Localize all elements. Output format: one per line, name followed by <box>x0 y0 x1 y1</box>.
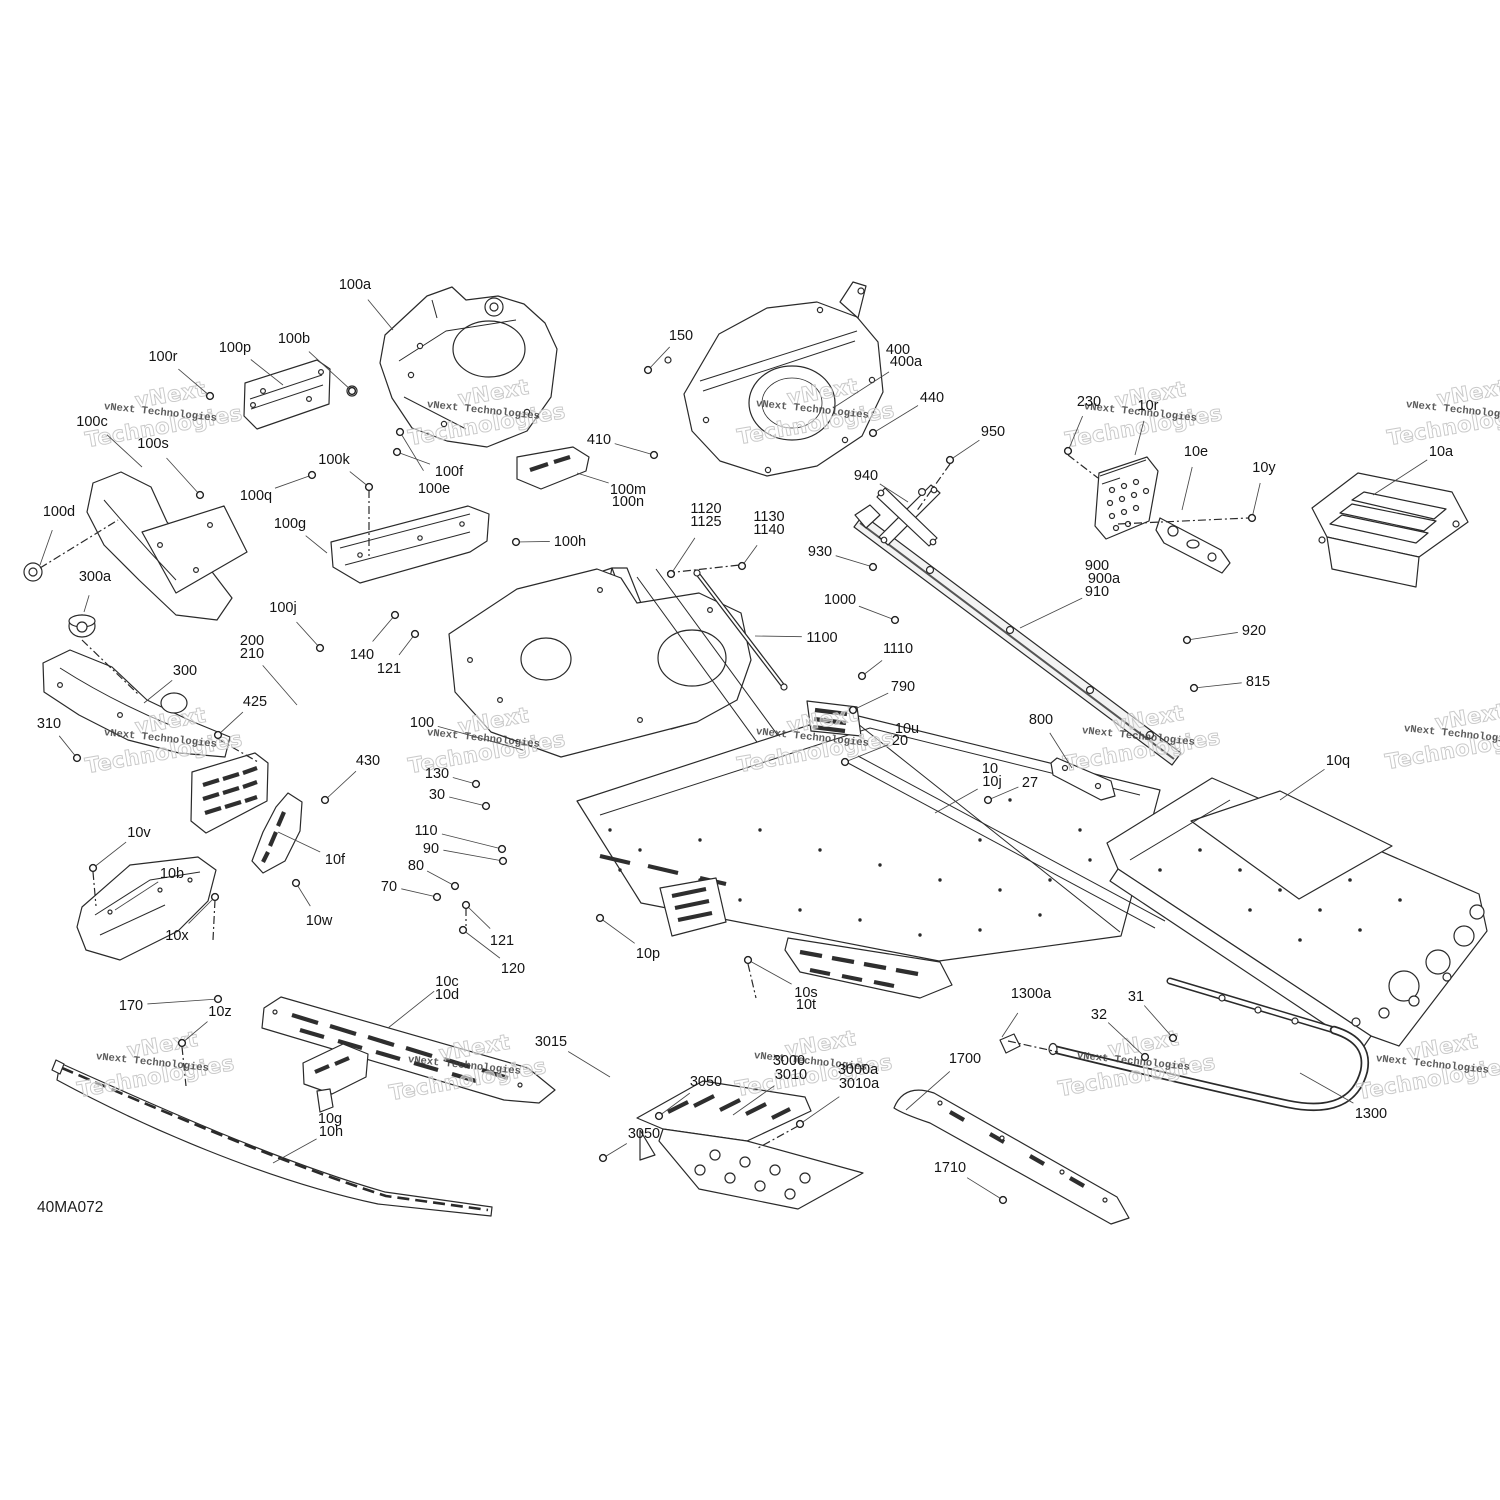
part-label: 121 <box>377 661 401 677</box>
part-label: 121 <box>490 933 514 949</box>
part-label: 10r <box>1138 398 1159 414</box>
fastener-icon <box>366 484 373 491</box>
part-label: 430 <box>356 753 380 769</box>
fastener-icon <box>1000 1197 1007 1204</box>
fastener-icon <box>90 865 97 872</box>
part-label: 120 <box>501 961 525 977</box>
fastener-icon <box>797 1121 804 1128</box>
fastener-icon <box>212 894 219 901</box>
fastener-icon <box>499 846 506 853</box>
part-label: 100j <box>269 600 296 616</box>
part-label: 400a <box>890 354 923 370</box>
drawing-code: 40MA072 <box>37 1199 103 1216</box>
part-label: 815 <box>1246 674 1270 690</box>
part-label: 1000 <box>824 592 856 608</box>
part-label: 300 <box>173 663 197 679</box>
fastener-icon <box>842 759 849 766</box>
fastener-icon <box>463 902 470 909</box>
fastener-icon <box>412 631 419 638</box>
part-label: 1300a <box>1011 986 1052 1002</box>
plug-100d-drawing <box>24 563 42 581</box>
part-label: 930 <box>808 544 832 560</box>
fastener-icon <box>452 883 459 890</box>
part-label: 100k <box>318 452 350 468</box>
fastener-icon <box>309 472 316 479</box>
part-label: 100e <box>418 481 450 497</box>
part-label: 410 <box>587 432 611 448</box>
part-label: 10a <box>1429 444 1454 460</box>
fastener-icon <box>473 781 480 788</box>
part-label: 1100 <box>806 630 837 646</box>
part-label: 10h <box>319 1124 343 1140</box>
fastener-icon <box>215 996 222 1003</box>
part-label: 27 <box>1022 775 1038 791</box>
part-label: 100p <box>219 340 251 356</box>
fastener-icon <box>745 957 752 964</box>
part-label: 10f <box>325 852 346 868</box>
part-label: 950 <box>981 424 1005 440</box>
part-label: 10j <box>982 774 1001 790</box>
fastener-icon <box>392 612 399 619</box>
part-label: 10z <box>208 1004 231 1020</box>
fastener-icon <box>1249 515 1256 522</box>
part-label: 100s <box>137 436 168 452</box>
fastener-icon <box>207 393 214 400</box>
fastener-icon <box>460 927 467 934</box>
part-label: 10v <box>127 825 151 841</box>
part-label: 100 <box>410 715 434 731</box>
part-label: 10x <box>165 928 189 944</box>
part-label: 100a <box>339 277 372 293</box>
part-label: 100g <box>274 516 306 532</box>
fastener-icon <box>322 797 329 804</box>
part-label: 90 <box>423 841 439 857</box>
part-label: 10w <box>306 913 333 929</box>
part-label: 1700 <box>949 1051 981 1067</box>
part-label: 790 <box>891 679 915 695</box>
part-label: 230 <box>1077 394 1101 410</box>
fastener-icon <box>349 388 356 395</box>
part-label: 300a <box>79 569 112 585</box>
fastener-icon <box>859 673 866 680</box>
part-label: 1300 <box>1355 1106 1387 1122</box>
part-label: 100c <box>76 414 107 430</box>
part-label: 100r <box>148 349 177 365</box>
part-label: 100h <box>554 534 586 550</box>
part-label: 800 <box>1029 712 1053 728</box>
part-label: 1125 <box>690 514 721 530</box>
fastener-icon <box>1065 448 1072 455</box>
part-label: 3010 <box>775 1067 807 1083</box>
fastener-icon <box>739 563 746 570</box>
part-label: 3010a <box>839 1076 880 1092</box>
fastener-icon <box>892 617 899 624</box>
part-label: 10q <box>1326 753 1350 769</box>
fastener-icon <box>317 645 324 652</box>
part-label: 1110 <box>883 641 913 657</box>
fastener-icon <box>651 452 658 459</box>
fastener-icon <box>215 732 222 739</box>
part-label: 1140 <box>753 522 784 538</box>
leader-line <box>516 541 550 542</box>
fastener-icon <box>74 755 81 762</box>
part-label: 310 <box>37 716 61 732</box>
part-label: 80 <box>408 858 424 874</box>
part-label: 32 <box>1091 1007 1107 1023</box>
part-label: 31 <box>1128 989 1144 1005</box>
fastener-icon <box>434 894 441 901</box>
fastener-icon <box>1170 1035 1177 1042</box>
fastener-icon <box>293 880 300 887</box>
fastener-icon <box>645 367 652 374</box>
part-label: 170 <box>119 998 143 1014</box>
fastener-icon <box>1142 1054 1149 1061</box>
part-label: 10e <box>1184 444 1208 460</box>
parts-diagram-canvas: vNextTechnologiesvNext TechnologiesvNext… <box>0 0 1500 1500</box>
part-label: 210 <box>240 646 264 662</box>
fastener-icon <box>597 915 604 922</box>
part-label: 3050 <box>690 1074 722 1090</box>
fastener-icon <box>870 564 877 571</box>
part-label: 150 <box>669 328 693 344</box>
part-label: 100f <box>435 464 464 480</box>
fastener-icon <box>1184 637 1191 644</box>
part-label: 10y <box>1252 460 1276 476</box>
part-label: 100d <box>43 504 75 520</box>
fastener-icon <box>513 539 520 546</box>
fastener-icon <box>179 1040 186 1047</box>
part-label: 70 <box>381 879 397 895</box>
fastener-icon <box>947 457 954 464</box>
part-label: 20 <box>892 733 908 749</box>
part-label: 425 <box>243 694 267 710</box>
part-label: 100n <box>612 494 644 510</box>
part-label: 910 <box>1085 584 1109 600</box>
part-label: 110 <box>414 823 437 839</box>
fastener-icon <box>850 707 857 714</box>
fastener-icon <box>870 430 877 437</box>
part-label: 100b <box>278 331 310 347</box>
fastener-icon <box>656 1113 663 1120</box>
part-label: 920 <box>1242 623 1266 639</box>
part-label: 10b <box>160 866 184 882</box>
bushing-300a-drawing <box>69 615 95 637</box>
fastener-icon <box>1191 685 1198 692</box>
fastener-icon <box>197 492 204 499</box>
part-label: 3015 <box>535 1034 567 1050</box>
part-label: 3050 <box>628 1126 660 1142</box>
fastener-icon <box>483 803 490 810</box>
fastener-icon <box>600 1155 607 1162</box>
part-label: 440 <box>920 390 944 406</box>
part-label: 30 <box>429 787 445 803</box>
fastener-icon <box>668 571 675 578</box>
part-label: 1710 <box>934 1160 966 1176</box>
part-label: 10p <box>636 946 660 962</box>
part-label: 100q <box>240 488 272 504</box>
part-label: 140 <box>350 647 374 663</box>
part-label: 940 <box>854 468 878 484</box>
fastener-icon <box>500 858 507 865</box>
fastener-icon <box>397 429 404 436</box>
part-label: 10t <box>796 997 816 1013</box>
fastener-icon <box>985 797 992 804</box>
fastener-icon <box>394 449 401 456</box>
part-label: 130 <box>425 766 449 782</box>
part-label: 10d <box>435 987 459 1003</box>
